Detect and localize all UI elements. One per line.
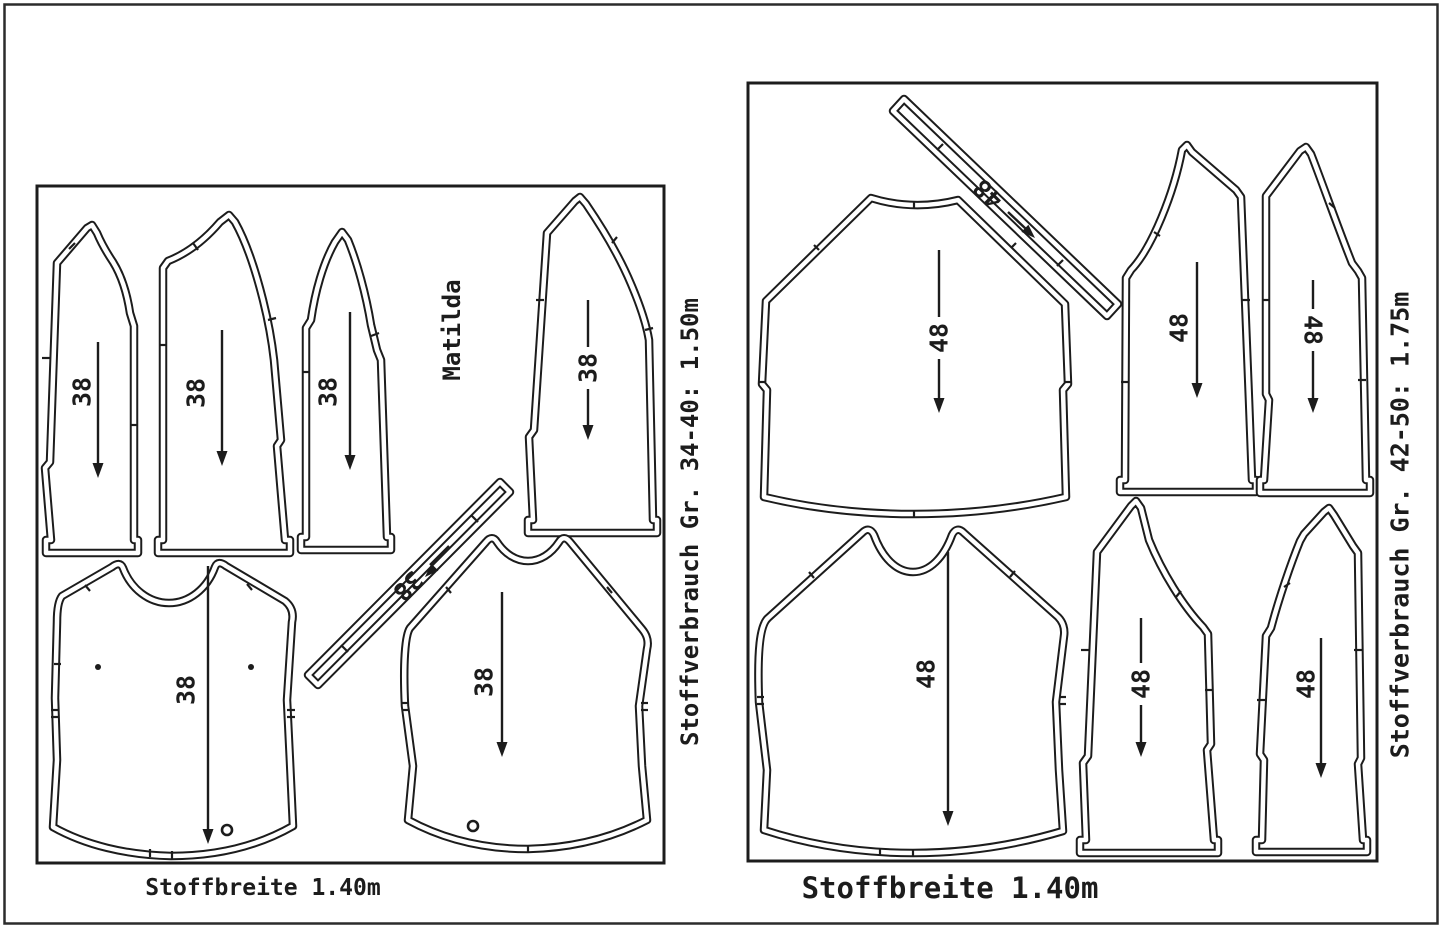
size-label: 48 xyxy=(1127,669,1156,699)
size-label: 38 xyxy=(470,667,499,697)
drill-mark xyxy=(248,664,254,670)
size-label: 48 xyxy=(1299,315,1328,345)
cutting-layout-left: 38 38 38 38 38 38 38 Matilda Stoffverbra… xyxy=(37,186,704,901)
size-label: 48 xyxy=(912,659,941,689)
button-mark xyxy=(468,821,478,831)
size-label: 48 xyxy=(925,323,954,353)
size-label: 38 xyxy=(574,353,603,383)
pattern-piece-sleeve-2 xyxy=(158,215,290,553)
fabric-width-label-right: Stoffbreite 1.40m xyxy=(802,871,1099,905)
pattern-piece-bodice-front-48 xyxy=(758,530,1064,853)
size-label: 38 xyxy=(68,377,97,407)
pattern-piece-bodice-back-48 xyxy=(762,198,1068,514)
button-mark xyxy=(222,825,232,835)
size-label: 38 xyxy=(314,377,343,407)
cutting-layout-drawing: 38 38 38 38 38 38 38 Matilda Stoffverbra… xyxy=(0,0,1445,929)
drill-mark xyxy=(95,664,101,670)
consumption-label-left: Stoffverbrauch Gr. 34-40: 1.50m xyxy=(676,298,704,746)
consumption-label-right: Stoffverbrauch Gr. 42-50: 1.75m xyxy=(1386,292,1415,759)
pattern-name: Matilda xyxy=(438,279,466,380)
size-label: 48 xyxy=(1292,669,1321,699)
pattern-sheet: 38 38 38 38 38 38 38 Matilda Stoffverbra… xyxy=(0,0,1445,929)
pattern-piece-bodice-back xyxy=(53,563,293,856)
fabric-width-label-left: Stoffbreite 1.40m xyxy=(145,875,380,901)
size-label: 38 xyxy=(182,378,211,408)
cutting-layout-right: 48 48 48 48 48 48 48 Stoffverbrauch Gr. … xyxy=(748,83,1415,905)
pattern-piece-bodice-front xyxy=(404,538,648,849)
size-label: 48 xyxy=(1165,313,1194,343)
size-label: 38 xyxy=(172,675,201,705)
